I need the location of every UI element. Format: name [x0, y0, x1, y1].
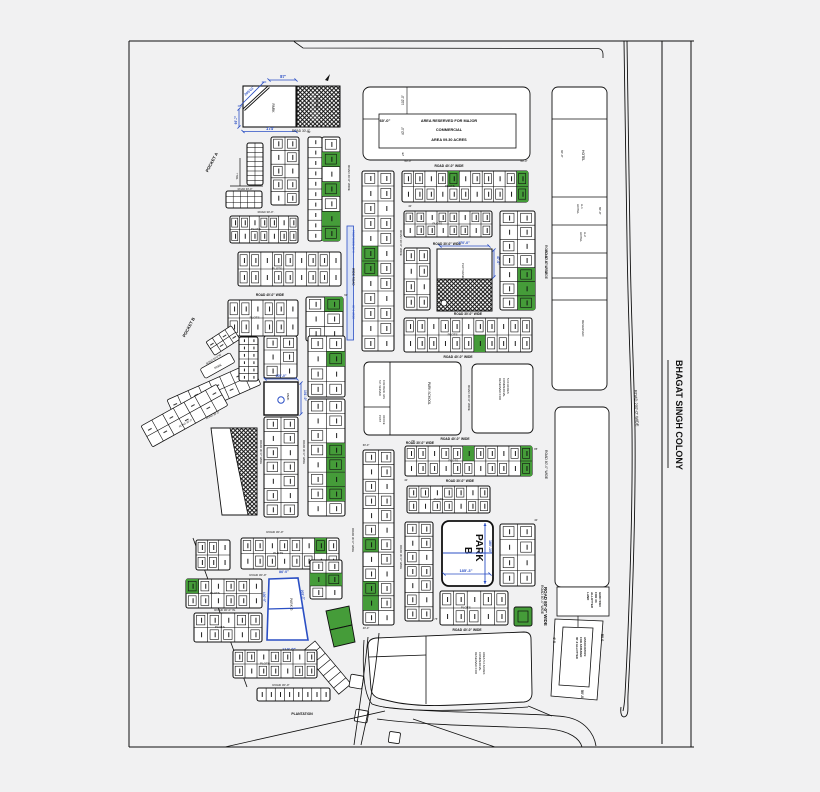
svg-text:174': 174' [266, 126, 274, 131]
svg-text:ROAD 30'-0" WIDE: ROAD 30'-0" WIDE [399, 545, 403, 569]
svg-text:ROAD 40'-0" WIDE: ROAD 40'-0" WIDE [443, 355, 473, 359]
svg-text:ROAD 40'-0" WIDE: ROAD 40'-0" WIDE [467, 385, 471, 411]
svg-text:OFFICE: OFFICE [382, 415, 386, 425]
svg-text:PLOTS: PLOTS [432, 222, 442, 226]
svg-text:ROAD 40'-0" WIDE: ROAD 40'-0" WIDE [256, 293, 284, 297]
svg-text:PARK: PARK [473, 534, 484, 562]
svg-text:40': 40' [408, 204, 412, 208]
svg-text:HOTEL: HOTEL [576, 204, 580, 214]
svg-text:LAND: LAND [586, 592, 590, 601]
svg-text:75': 75' [434, 617, 438, 621]
svg-text:ROAD 30'-0": ROAD 30'-0" [238, 187, 253, 191]
svg-text:PLOTS: PLOTS [434, 497, 444, 501]
svg-text:170'-0": 170'-0" [458, 241, 470, 245]
svg-text:COMMERCIAL: COMMERCIAL [502, 378, 506, 397]
svg-text:GRID SSN: GRID SSN [598, 592, 602, 607]
svg-text:PLOTS: PLOTS [215, 625, 225, 629]
svg-text:130'-0": 130'-0" [262, 592, 267, 603]
svg-text:ROAD 40'-0" WIDE: ROAD 40'-0" WIDE [440, 437, 470, 441]
svg-text:50-0: 50-0 [600, 634, 604, 641]
svg-text:ROAD 40'-0" WIDE: ROAD 40'-0" WIDE [452, 628, 482, 632]
svg-text:FOR 33: FOR 33 [594, 592, 598, 603]
svg-text:60'-0": 60'-0" [520, 159, 527, 163]
svg-text:H-2: H-2 [583, 232, 587, 237]
svg-text:PARK: PARK [271, 104, 275, 114]
svg-text:101'-0": 101'-0" [303, 390, 307, 401]
svg-text:180'-10": 180'-10" [488, 540, 492, 554]
svg-text:85': 85' [534, 447, 538, 451]
svg-text:AREA 09.30 ACRES: AREA 09.30 ACRES [431, 138, 467, 142]
svg-text:80'-0": 80'-0" [598, 207, 602, 215]
svg-text:S.P. SERVED: S.P. SERVED [378, 380, 382, 396]
svg-text:BHAGAT SINGH COLONY: BHAGAT SINGH COLONY [674, 360, 684, 470]
svg-text:RESERVED FOR: RESERVED FOR [498, 378, 502, 400]
svg-text:ROAD 30'-0" WIDE: ROAD 30'-0" WIDE [454, 312, 482, 316]
svg-text:HOTEL: HOTEL [579, 232, 583, 242]
svg-text:ROAD 80'-0" WIDE: ROAD 80'-0" WIDE [543, 587, 548, 626]
svg-text:RESERVED FOR: RESERVED FOR [474, 652, 478, 674]
svg-text:POST: POST [378, 415, 382, 422]
svg-text:40': 40' [404, 478, 408, 482]
svg-text:WIDE ROAD: WIDE ROAD [352, 268, 356, 286]
svg-text:ROAD 30'-0": ROAD 30'-0" [272, 683, 289, 687]
svg-text:FOR BANK VAN: FOR BANK VAN [382, 380, 386, 399]
svg-text:PROPOSED 60'-0: PROPOSED 60'-0 [352, 230, 356, 253]
svg-text:ROAD 30'-0" WIDE: ROAD 30'-0" WIDE [433, 242, 461, 246]
svg-text:70': 70' [411, 439, 415, 443]
svg-text:PLOTS: PLOTS [445, 184, 455, 188]
svg-text:185'-3": 185'-3" [459, 568, 472, 573]
svg-text:ROAD 30'-0" WIDE: ROAD 30'-0" WIDE [399, 230, 403, 256]
svg-text:PLOTS: PLOTS [448, 459, 458, 463]
svg-text:ALLOTTED: ALLOTTED [590, 592, 594, 609]
svg-text:PARK G: PARK G [289, 598, 293, 611]
svg-text:COMMERCIAL: COMMERCIAL [478, 652, 482, 671]
svg-text:ROAD 40'-0" WIDE: ROAD 40'-0" WIDE [434, 164, 464, 168]
svg-text:86'-0": 86'-0" [279, 570, 289, 574]
svg-text:AREA 5.0 ACRES: AREA 5.0 ACRES [482, 652, 486, 675]
svg-text:PLOTS: PLOTS [461, 606, 471, 610]
svg-text:ROAD 80'-0" WIDE: ROAD 80'-0" WIDE [544, 450, 548, 480]
svg-text:ROAD 30'-0": ROAD 30'-0" [266, 530, 283, 534]
svg-text:100'-0": 100'-0" [275, 374, 286, 378]
svg-text:PLOTS: PLOTS [251, 227, 261, 231]
svg-text:30': 30' [307, 130, 311, 134]
svg-text:40'-0": 40'-0" [363, 626, 370, 630]
svg-text:COMMERCIAL: COMMERCIAL [436, 128, 463, 132]
svg-text:40': 40' [534, 518, 538, 522]
svg-text:25': 25' [401, 152, 405, 156]
svg-text:60'-0": 60'-0" [380, 118, 391, 123]
svg-text:50'-0: 50'-0 [580, 690, 584, 698]
svg-text:47'-0": 47'-0" [496, 256, 500, 265]
svg-text:87': 87' [280, 74, 286, 79]
svg-text:60': 60' [344, 293, 348, 297]
svg-text:PROPOSED: PROPOSED [315, 95, 319, 110]
svg-text:PLOTS: PLOTS [260, 662, 270, 666]
svg-text:ROAD 30'-0": ROAD 30'-0" [249, 573, 266, 577]
svg-text:ROAD 30'-0".: ROAD 30'-0". [258, 210, 275, 214]
svg-text:H-1: H-1 [580, 204, 584, 209]
svg-text:AREA RESERVED FOR MAJOR: AREA RESERVED FOR MAJOR [421, 119, 478, 123]
svg-text:FOR ASSURED: FOR ASSURED [579, 637, 583, 657]
svg-text:ROAD 40'-0" WIDE: ROAD 40'-0" WIDE [347, 165, 351, 191]
svg-text:PLOTS: PLOTS [272, 267, 282, 271]
svg-text:PLOTS: PLOTS [273, 551, 283, 555]
svg-text:ROAD 30'-0" WIDE: ROAD 30'-0" WIDE [259, 440, 263, 464]
svg-text:ROAD 30'-0" WIDE: ROAD 30'-0" WIDE [446, 479, 474, 483]
svg-text:PLOTS: PLOTS [448, 333, 458, 337]
svg-text:102'-0": 102'-0" [401, 95, 405, 105]
svg-text:30'-0 ALLOTTED: 30'-0 ALLOTTED [575, 637, 579, 659]
svg-text:60'-0": 60'-0" [560, 150, 564, 158]
svg-text:5.00 ACRES: 5.00 ACRES [506, 378, 510, 394]
svg-text:HOTEL: HOTEL [581, 150, 585, 161]
svg-text:ROAD 80'-0" WIDE: ROAD 80'-0" WIDE [544, 245, 548, 275]
svg-text:60'-0": 60'-0" [404, 159, 411, 163]
svg-text:PLANTATION: PLANTATION [291, 712, 313, 716]
svg-text:4'-0: 4'-0 [552, 637, 556, 643]
svg-text:60'-0 WIDE: 60'-0 WIDE [352, 305, 356, 319]
svg-text:WALL: WALL [236, 172, 239, 179]
svg-text:PLOTS: PLOTS [250, 316, 260, 320]
svg-text:ROAD 30'-0" W.: ROAD 30'-0" W. [214, 608, 236, 612]
svg-text:ROAD 30'-0" WIDE: ROAD 30'-0" WIDE [406, 441, 434, 445]
svg-text:PARK SCHOOL: PARK SCHOOL [427, 382, 431, 405]
svg-text:66'-7": 66'-7" [234, 115, 238, 124]
svg-text:ROAD 30'-0" WIDE: ROAD 30'-0" WIDE [351, 528, 355, 552]
svg-text:PLOTS: PLOTS [210, 591, 220, 595]
svg-text:40'-0": 40'-0" [401, 127, 405, 135]
svg-text:ROAD 30'-0" WIDE: ROAD 30'-0" WIDE [302, 440, 306, 464]
svg-text:60'-0": 60'-0" [363, 443, 370, 447]
svg-text:RESERVED: RESERVED [581, 320, 585, 337]
svg-text:PARK: PARK [286, 393, 290, 401]
svg-text:ASSOCIATION: ASSOCIATION [583, 637, 587, 656]
